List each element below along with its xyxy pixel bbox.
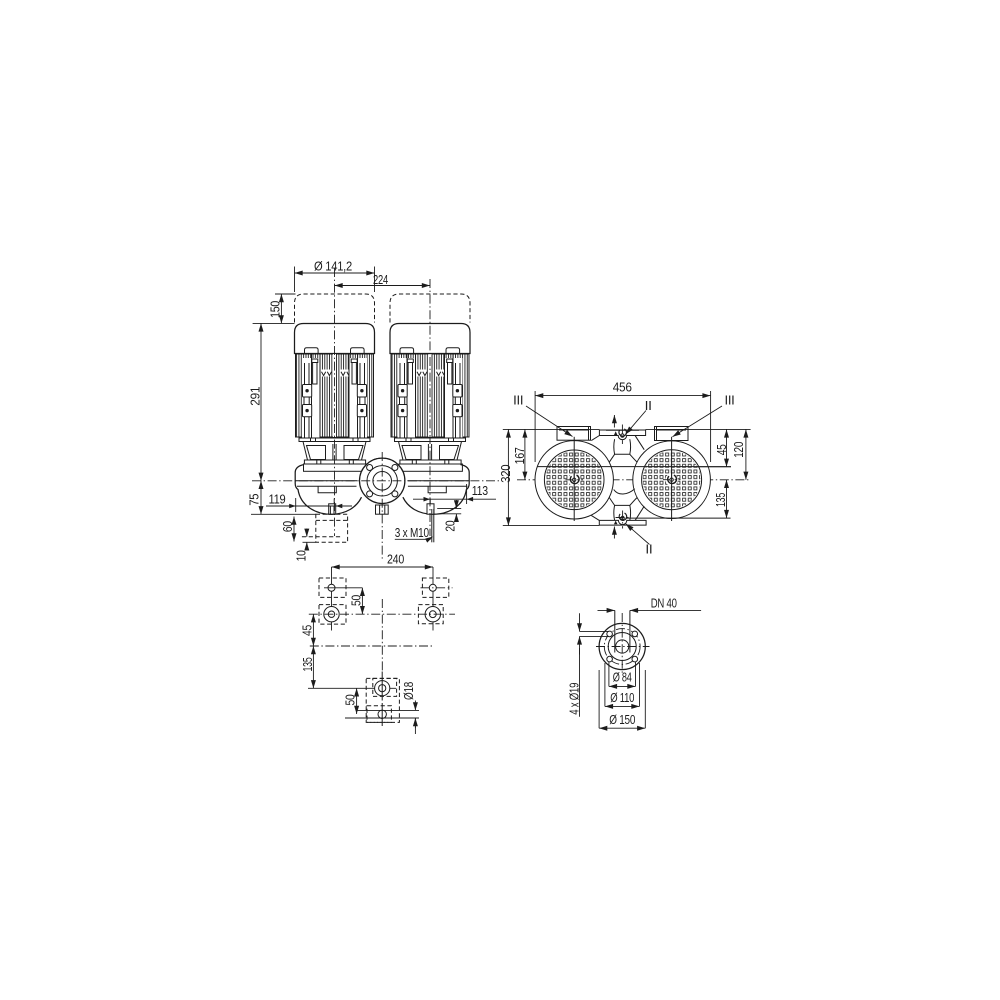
svg-text:45: 45	[714, 444, 729, 455]
svg-text:DN 40: DN 40	[651, 595, 677, 610]
svg-text:50: 50	[343, 694, 358, 705]
svg-text:50: 50	[349, 595, 364, 606]
svg-text:167: 167	[512, 447, 527, 464]
svg-text:135: 135	[300, 657, 315, 671]
svg-text:3 x M10: 3 x M10	[395, 525, 429, 540]
svg-text:75: 75	[246, 494, 261, 506]
svg-text:Ø 110: Ø 110	[610, 690, 634, 705]
svg-text:240: 240	[387, 552, 404, 567]
svg-text:113: 113	[472, 483, 488, 498]
svg-text:224: 224	[373, 272, 388, 287]
svg-text:135: 135	[713, 493, 728, 507]
svg-text:120: 120	[731, 442, 746, 458]
svg-text:4 x Ø19: 4 x Ø19	[566, 683, 581, 715]
svg-text:Ø 84: Ø 84	[613, 670, 632, 685]
svg-text:45: 45	[300, 625, 315, 636]
svg-text:20: 20	[443, 521, 458, 532]
svg-text:10: 10	[293, 550, 308, 561]
svg-text:60: 60	[280, 521, 295, 532]
svg-text:Ø 150: Ø 150	[609, 712, 635, 727]
svg-text:456: 456	[613, 379, 632, 394]
svg-text:III: III	[513, 393, 523, 408]
svg-text:320: 320	[498, 465, 513, 483]
svg-text:119: 119	[269, 491, 286, 506]
svg-text:Ø 141,2: Ø 141,2	[314, 258, 352, 273]
svg-text:Ø18: Ø18	[401, 682, 416, 700]
svg-text:III: III	[725, 393, 735, 408]
svg-text:291: 291	[248, 387, 263, 406]
svg-text:150: 150	[267, 301, 282, 318]
